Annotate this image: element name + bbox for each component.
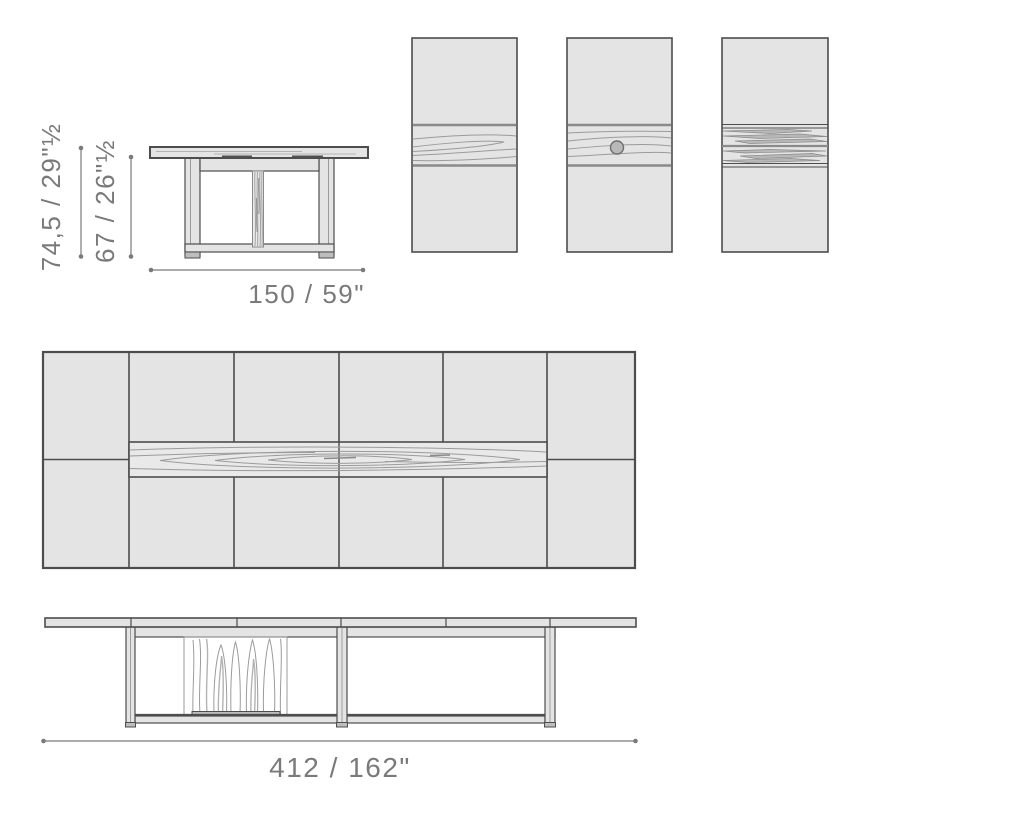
front-elevation-view	[79, 146, 368, 273]
front-right-foot	[319, 252, 334, 258]
plan-view-extended	[43, 352, 635, 568]
front-left-leg	[185, 158, 200, 256]
front-width-dimension-line	[149, 268, 366, 273]
front-right-leg	[319, 158, 334, 256]
front-undertop-height-dimension-line	[129, 155, 134, 259]
extended-length-dimension-label: 412 / 162"	[190, 754, 490, 782]
side-center-foot	[337, 723, 348, 728]
extension-hardware-left	[222, 156, 252, 159]
front-total-height-dimension-line	[79, 146, 84, 259]
side-right-foot	[545, 723, 556, 728]
leaf-panel-striped-grain	[722, 38, 828, 252]
side-left-foot	[126, 723, 136, 728]
closed-width-dimension-label: 150 / 59"	[150, 281, 365, 307]
side-length-dimension-line	[41, 739, 638, 744]
undertop-height-dimension-label: 67 / 26"½	[92, 139, 118, 263]
front-apron	[200, 158, 319, 171]
side-elevation-extended	[41, 618, 638, 743]
leaf-panel-plain-grain	[412, 38, 517, 252]
side-panel-grain-lines	[193, 639, 282, 714]
front-left-foot	[185, 252, 200, 258]
leaf-panel-knot-grain	[567, 38, 672, 252]
front-tabletop	[150, 147, 368, 158]
extension-hardware-right	[292, 156, 323, 159]
wood-knot-icon	[611, 141, 624, 154]
total-height-dimension-label: 74,5 / 29"½	[38, 123, 64, 272]
drawing-svg	[0, 0, 1024, 817]
technical-drawing-canvas: 74,5 / 29"½ 67 / 26"½ 150 / 59" 412 / 16…	[0, 0, 1024, 817]
